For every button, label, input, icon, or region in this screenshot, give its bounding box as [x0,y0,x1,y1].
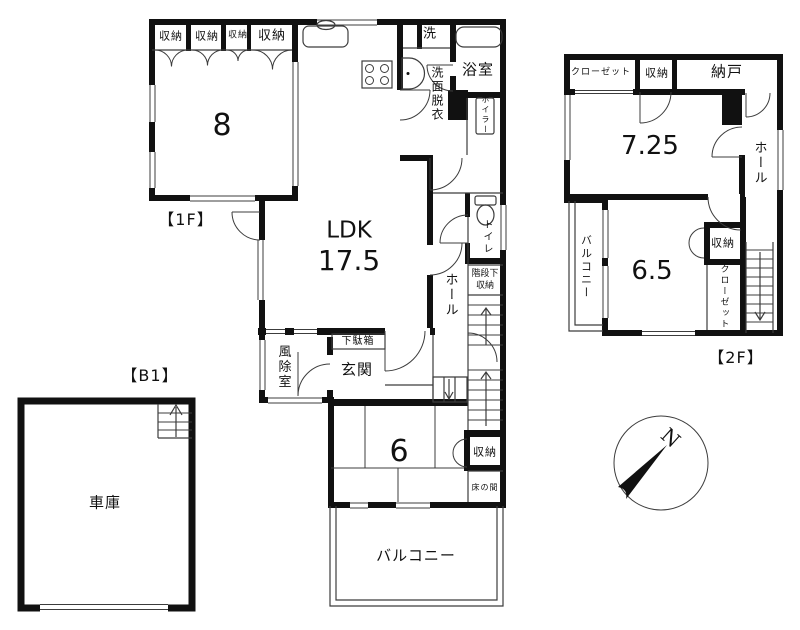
b1-stair-arrow [170,405,182,437]
room-label-hall-2f: ホール [753,141,766,186]
room-label-toilet: トイレ [481,219,491,255]
room-label-closet-2: 収納 [195,31,219,42]
room-label-storage-2f: 収納 [711,238,735,249]
room-label-garage: 車庫 [89,496,121,511]
room-label-understair-1: 階段下 [471,269,498,279]
compass-icon [614,416,708,510]
room-label-washroom: 洗面脱衣 [431,66,443,122]
bathtub-icon [456,27,502,47]
north-arrow [618,445,667,499]
floor-label-2f: 【2F】 [708,350,763,366]
room-label-ldk: LDK [326,220,372,243]
room-label-balcony-1f: バルコニー [376,549,456,564]
room-size-8: 8 [212,111,231,141]
room-label-understair-2: 収納 [476,281,494,291]
room-label-shoe-cabinet: 下駄箱 [342,337,375,347]
room-size-6: 6 [389,437,408,467]
room-label-closet-3: 収納 [228,32,248,41]
room-label-boiler: ボイラー [481,95,489,135]
room-label-tokonoma: 床の間 [472,484,499,492]
room-label-storage-1f: 収納 [473,447,497,458]
room-label-closet-2f-side: クローゼット [719,264,728,330]
floor-2f-geometry [563,57,785,338]
room-size-725: 7.25 [621,133,679,159]
b1-stairs [158,413,192,430]
floor-plan: 【1F】 収納 収納 収納 収納 8 洗 浴室 洗面脱衣 ボイラー LDK 17… [0,0,800,630]
room-label-windbreak: 風除室 [277,345,290,390]
room-label-closet-2f-top: クローゼット [571,69,631,78]
room-size-65: 6.5 [631,258,672,284]
stove-icon [362,61,392,88]
floor-label-1f: 【1F】 [158,212,213,228]
room-label-closet-4: 収納 [258,30,286,43]
room-label-balcony-2f: バルコニー [581,235,592,300]
room-label-laundry: 洗 [423,28,437,41]
room-label-hall-1f: ホール [444,273,457,318]
room-label-bath: 浴室 [462,63,494,78]
room-label-entrance: 玄関 [341,363,373,378]
floor-plan-drawing [0,0,800,630]
room-label-storage-2f-top: 収納 [645,68,669,79]
f2-windows [563,89,785,338]
washbasin-icon [402,58,425,89]
room-label-closet-1: 収納 [159,31,183,42]
room-label-nando: 納戸 [711,65,743,80]
floor-label-b1: 【B1】 [121,368,178,384]
room-size-ldk: 17.5 [318,247,380,275]
